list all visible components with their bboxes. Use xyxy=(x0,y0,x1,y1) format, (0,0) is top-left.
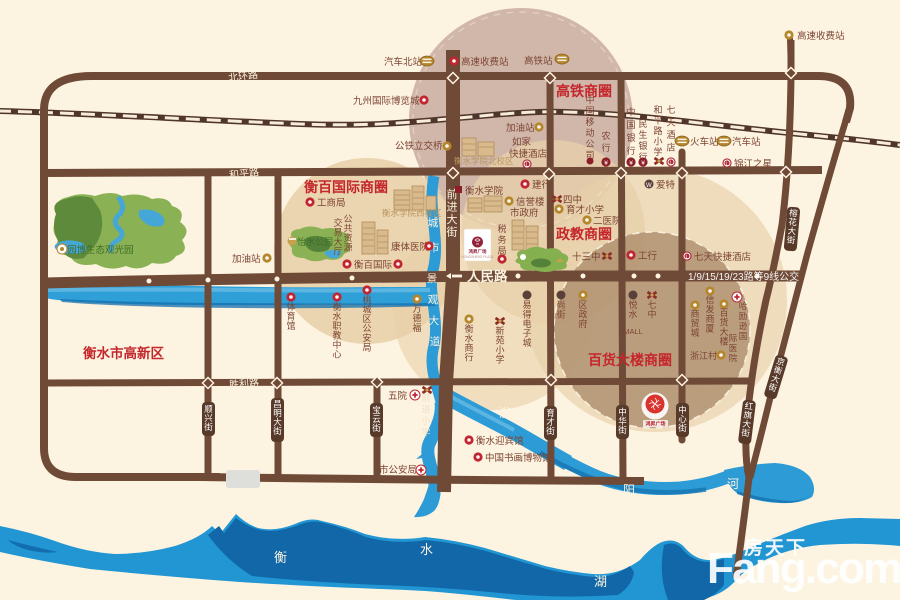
svg-text:交易大厅: 交易大厅 xyxy=(333,217,342,257)
svg-text:新苑小学: 新苑小学 xyxy=(495,325,504,365)
svg-text:高速收费站: 高速收费站 xyxy=(797,30,845,42)
svg-text:康体医院: 康体医院 xyxy=(391,241,430,253)
svg-text:昌明大街: 昌明大街 xyxy=(273,399,282,436)
svg-text:建行: 建行 xyxy=(532,179,552,191)
svg-text:信发商厦: 信发商厦 xyxy=(705,294,714,334)
svg-text:前进大街: 前进大街 xyxy=(447,187,458,239)
svg-text:公铁立交桥: 公铁立交桥 xyxy=(395,140,443,152)
svg-text:衡水职教中心: 衡水职教中心 xyxy=(332,301,341,360)
svg-text:高速收费站: 高速收费站 xyxy=(461,56,509,68)
svg-text:鸿昇广场: 鸿昇广场 xyxy=(645,421,665,428)
svg-text:Fang.com: Fang.com xyxy=(707,544,900,593)
svg-text:市政府: 市政府 xyxy=(510,207,539,219)
svg-text:衡: 衡 xyxy=(274,550,287,565)
svg-text:衡水商行: 衡水商行 xyxy=(464,323,473,363)
svg-text:悦水: 悦水 xyxy=(628,299,637,320)
svg-text:七中: 七中 xyxy=(647,300,656,320)
svg-text:中心街: 中心街 xyxy=(678,405,687,433)
svg-text:百货大楼: 百货大楼 xyxy=(719,308,728,347)
svg-text:汽车站: 汽车站 xyxy=(732,136,761,148)
svg-text:工商局: 工商局 xyxy=(317,197,346,209)
svg-text:体育馆: 体育馆 xyxy=(286,301,295,331)
svg-text:易得电子城: 易得电子城 xyxy=(522,300,531,348)
svg-text:税务局: 税务局 xyxy=(497,223,506,256)
svg-text:市公安局: 市公安局 xyxy=(379,464,417,476)
svg-text:如家: 如家 xyxy=(512,136,532,148)
svg-text:衡水学院北校区: 衡水学院北校区 xyxy=(454,156,514,166)
svg-text:商贸城: 商贸城 xyxy=(690,308,699,338)
svg-text:衡水迎宾馆: 衡水迎宾馆 xyxy=(476,435,524,447)
svg-text:公共资源: 公共资源 xyxy=(343,214,352,253)
svg-text:育才小学: 育才小学 xyxy=(566,204,604,216)
svg-text:尚街: 尚街 xyxy=(556,299,565,320)
svg-text:怡水公园: 怡水公园 xyxy=(297,236,333,247)
svg-text:政教商圈: 政教商圈 xyxy=(556,226,612,242)
svg-text:MALL: MALL xyxy=(623,327,643,336)
svg-text:鸿昇广场: 鸿昇广场 xyxy=(469,248,487,255)
svg-text:桃城区公安局: 桃城区公安局 xyxy=(362,294,371,353)
svg-text:顺兴街: 顺兴街 xyxy=(204,404,213,432)
svg-text:阳: 阳 xyxy=(623,483,635,497)
svg-text:高铁商圈: 高铁商圈 xyxy=(556,83,612,99)
svg-text:育才街: 育才街 xyxy=(546,408,555,436)
svg-text:河: 河 xyxy=(727,477,739,491)
svg-text:1/9/15/19/23路等9线公交: 1/9/15/19/23路等9线公交 xyxy=(688,270,799,283)
svg-text:园博生态观光园: 园博生态观光园 xyxy=(67,244,134,256)
svg-text:信誉楼: 信誉楼 xyxy=(516,196,545,208)
svg-text:高铁站: 高铁站 xyxy=(524,55,553,67)
svg-text:汽车北站: 汽车北站 xyxy=(384,56,423,68)
svg-text:十三中: 十三中 xyxy=(572,251,601,263)
svg-text:浙江村: 浙江村 xyxy=(690,350,717,361)
svg-text:衡百国际: 衡百国际 xyxy=(354,259,393,271)
svg-text:哈励逊国: 哈励逊国 xyxy=(739,301,748,341)
svg-text:九州国际博览城: 九州国际博览城 xyxy=(353,95,420,107)
svg-text:爱特: 爱特 xyxy=(656,179,676,191)
svg-text:滏: 滏 xyxy=(499,406,511,420)
svg-text:衡水学院: 衡水学院 xyxy=(465,185,504,197)
svg-text:锦江之星: 锦江之星 xyxy=(734,158,772,170)
svg-text:区政府: 区政府 xyxy=(578,300,587,329)
svg-text:衡水市高新区: 衡水市高新区 xyxy=(83,345,164,361)
svg-text:火车站: 火车站 xyxy=(690,136,719,148)
svg-text:工行: 工行 xyxy=(638,250,658,262)
svg-text:中国书画博物馆: 中国书画博物馆 xyxy=(485,452,552,464)
svg-text:加油站: 加油站 xyxy=(506,122,535,134)
svg-text:HONGSHENG PLAZA: HONGSHENG PLAZA xyxy=(462,255,495,259)
svg-text:快捷酒店: 快捷酒店 xyxy=(509,148,547,160)
svg-text:加油站: 加油站 xyxy=(232,253,261,265)
svg-text:衡水学院西校区: 衡水学院西校区 xyxy=(382,208,442,218)
svg-text:五院: 五院 xyxy=(388,390,408,402)
svg-text:七天快捷酒店: 七天快捷酒店 xyxy=(694,251,751,263)
svg-text:衡百国际商圈: 衡百国际商圈 xyxy=(304,179,388,195)
svg-text:水: 水 xyxy=(420,542,433,557)
svg-text:百货大楼商圈: 百货大楼商圈 xyxy=(588,352,672,368)
svg-text:和平路小学: 和平路小学 xyxy=(653,105,662,157)
svg-text:万德福: 万德福 xyxy=(412,304,421,333)
svg-text:二医院: 二医院 xyxy=(593,215,622,227)
svg-text:中华街: 中华街 xyxy=(618,407,627,435)
svg-text:际医院: 际医院 xyxy=(729,333,738,363)
svg-text:人民路: 人民路 xyxy=(467,268,508,284)
svg-text:W: W xyxy=(646,183,652,189)
svg-text:民生银行: 民生银行 xyxy=(638,119,647,162)
svg-text:宝云街: 宝云街 xyxy=(372,405,381,433)
svg-text:湖: 湖 xyxy=(594,574,607,589)
